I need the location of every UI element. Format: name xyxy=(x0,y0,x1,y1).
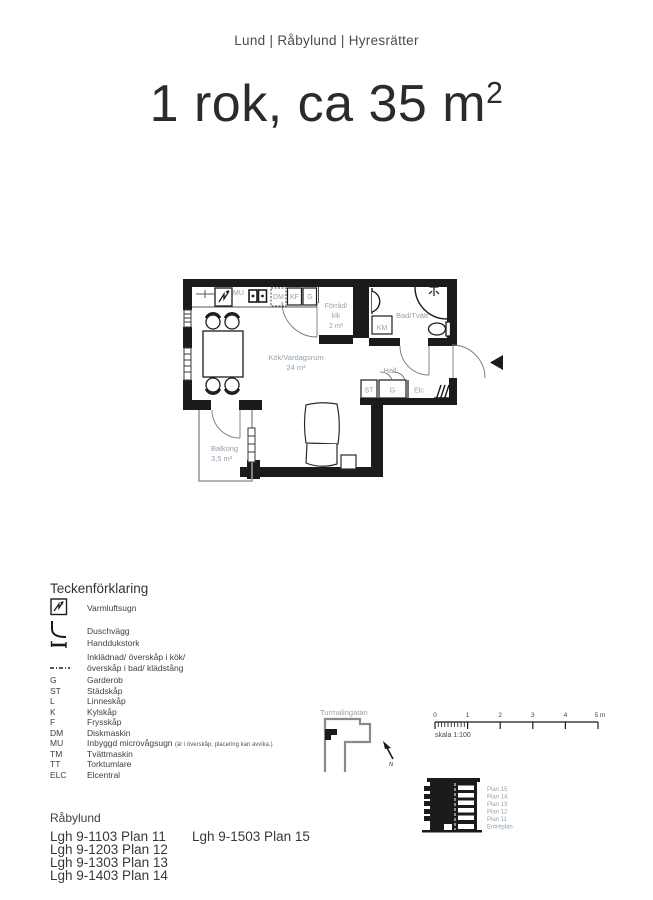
legend-label: Garderob xyxy=(87,675,123,685)
legend-label: Tvättmaskin xyxy=(87,749,133,759)
legend-label: Elcentral xyxy=(87,770,120,780)
page-title: 1 rok, ca 35 m2 xyxy=(0,74,653,134)
legend-abbr: ELC xyxy=(50,770,67,780)
bed xyxy=(305,403,357,469)
scale-caption: skala 1:100 xyxy=(435,732,471,739)
toilet-icon xyxy=(429,322,451,336)
scale-tick-label: 4 xyxy=(564,712,568,719)
bathroom-sink-icon xyxy=(372,288,380,314)
coat-hooks-icon xyxy=(434,385,451,400)
scale-tick-label: 0 xyxy=(433,712,437,719)
floor-label: Plan 15 xyxy=(487,787,508,793)
apartment-column-1: Lgh 9-1103 Plan 11 Lgh 9-1203 Plan 12 Lg… xyxy=(50,830,168,882)
legend-label: Inklädnad/ överskåp i kök/ xyxy=(87,652,185,662)
legend-label: Varmluftsugn xyxy=(87,603,136,613)
legend-label: Duschvägg xyxy=(87,626,130,636)
dash-dot-legend-icon xyxy=(50,666,70,670)
label-storage-2: klk xyxy=(332,313,341,320)
legend-label: Diskmaskin xyxy=(87,728,130,738)
legend-note: (är i överskåp, placering kan avvika.) xyxy=(175,742,273,748)
label-storage-area: 2 m² xyxy=(329,323,344,330)
legend-abbr: L xyxy=(50,696,55,706)
bathroom-door-icon xyxy=(400,346,429,375)
label-mu: MU xyxy=(233,290,244,297)
legend-label: Handdukstork xyxy=(87,638,139,648)
entrance-arrow-icon xyxy=(490,355,503,370)
entry-door-icon xyxy=(452,345,485,378)
label-dm: DM xyxy=(273,294,284,301)
apartment-column-2: Lgh 9-1503 Plan 15 xyxy=(192,830,310,843)
street-label: Turmalingatan xyxy=(320,708,368,717)
scale-tick-label: 2 xyxy=(498,712,502,719)
footer-heading: Råbylund xyxy=(50,811,101,825)
apartment-item: Lgh 9-1503 Plan 15 xyxy=(192,830,310,843)
label-balcony-area: 3,5 m² xyxy=(211,454,233,463)
building-elevation: Plan 15 Plan 14 Plan 13 Plan 12 Plan 11 … xyxy=(420,772,550,842)
towel-rail-legend-icon xyxy=(50,640,68,649)
legend-abbr: DM xyxy=(50,728,63,738)
legend-label: Linneskåp xyxy=(87,696,126,706)
north-arrow-icon: N xyxy=(383,741,393,768)
legend-label: Torktumlare xyxy=(87,759,131,769)
scale-tick-label: 5 m xyxy=(595,712,606,719)
legend-label: Kylskåp xyxy=(87,707,117,717)
building-outline xyxy=(325,719,370,772)
balcony-window-icon xyxy=(248,428,255,462)
legend-label: Frysskåp xyxy=(87,717,121,727)
legend-label: Städskåp xyxy=(87,686,122,696)
label-km: KM xyxy=(377,325,388,332)
label-elc: Elc xyxy=(414,388,424,395)
stove-burners-icon xyxy=(249,290,267,302)
scale-bar: 0 1 2 3 4 5 m skala 1:100 xyxy=(430,702,610,742)
legend: Varmluftsugn Duschvägg Handdukstork Inkl… xyxy=(50,598,340,788)
legend-abbr: F xyxy=(50,717,55,727)
floor-label: Plan 11 xyxy=(487,817,508,823)
floor-label: Plan 13 xyxy=(487,802,508,808)
legend-abbr: ST xyxy=(50,686,61,696)
elevation-building xyxy=(422,778,482,833)
legend-abbr: K xyxy=(50,707,56,717)
legend-abbr: TT xyxy=(50,759,60,769)
label-g-hall: G xyxy=(390,388,395,395)
location-breadcrumb: Lund | Råbylund | Hyresrätter xyxy=(0,33,653,48)
label-kitchen-living: Kök/Vardagsrum xyxy=(268,353,323,362)
label-hall: Hall xyxy=(384,366,397,375)
label-kf: KF xyxy=(290,294,299,301)
scale-tick-label: 1 xyxy=(466,712,470,719)
page-title-text: 1 rok, ca 35 m xyxy=(150,75,486,133)
label-kitchen-living-area: 24 m² xyxy=(286,363,306,372)
scale-tick-label: 3 xyxy=(531,712,535,719)
legend-heading: Teckenförklaring xyxy=(50,581,148,596)
label-storage-1: Förråd/ xyxy=(325,302,348,310)
floor-label: Plan 14 xyxy=(487,795,508,801)
oven-icon xyxy=(215,288,232,306)
legend-abbr: G xyxy=(50,675,57,685)
legend-label: överskåp i bad/ klädstång xyxy=(87,663,183,673)
floor-plan: Kök/Vardagsrum 24 m² Förråd/ klk 2 m² Ba… xyxy=(183,270,513,500)
legend-abbr: TM xyxy=(50,749,62,759)
balcony-door-icon xyxy=(212,410,240,438)
legend-abbr: MU xyxy=(50,738,63,748)
page-title-superscript: 2 xyxy=(486,77,503,110)
floor-label: Plan 12 xyxy=(487,810,508,816)
shower-legend-icon xyxy=(50,620,68,639)
north-label: N xyxy=(389,762,393,768)
oven-legend-icon xyxy=(50,598,68,616)
dining-table xyxy=(203,313,243,394)
label-bathroom: Bad/Tvätt xyxy=(396,311,429,320)
floor-label: Entréplan xyxy=(487,825,513,831)
label-st: ST xyxy=(365,388,375,395)
apartment-item: Lgh 9-1403 Plan 14 xyxy=(50,869,168,882)
legend-label: Inbyggd microvågsugn (är i överskåp, pla… xyxy=(87,738,273,748)
label-balcony: Balkong xyxy=(211,444,238,453)
site-plan: Turmalingatan N xyxy=(315,702,410,772)
label-g-kitchen: G xyxy=(307,294,312,301)
